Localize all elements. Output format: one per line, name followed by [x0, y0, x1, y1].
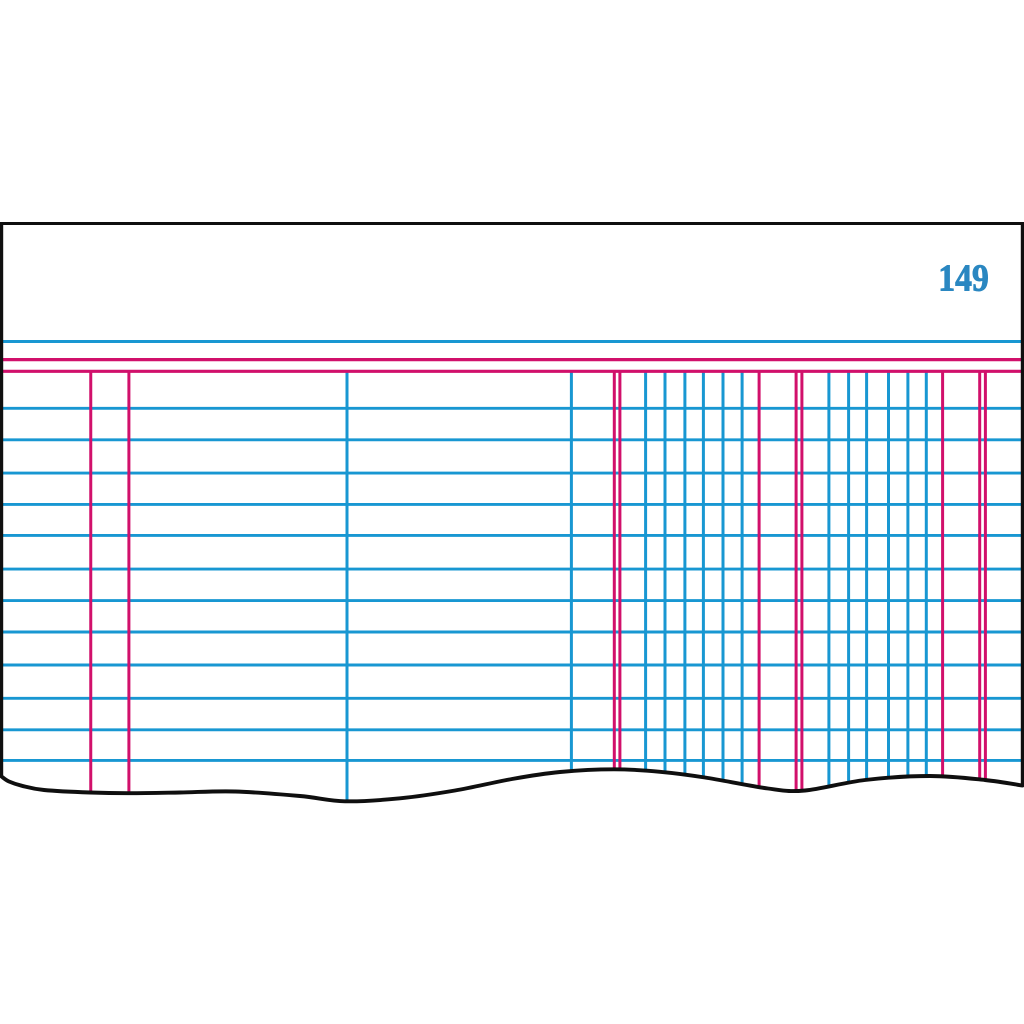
svg-text:149: 149 — [938, 256, 989, 299]
